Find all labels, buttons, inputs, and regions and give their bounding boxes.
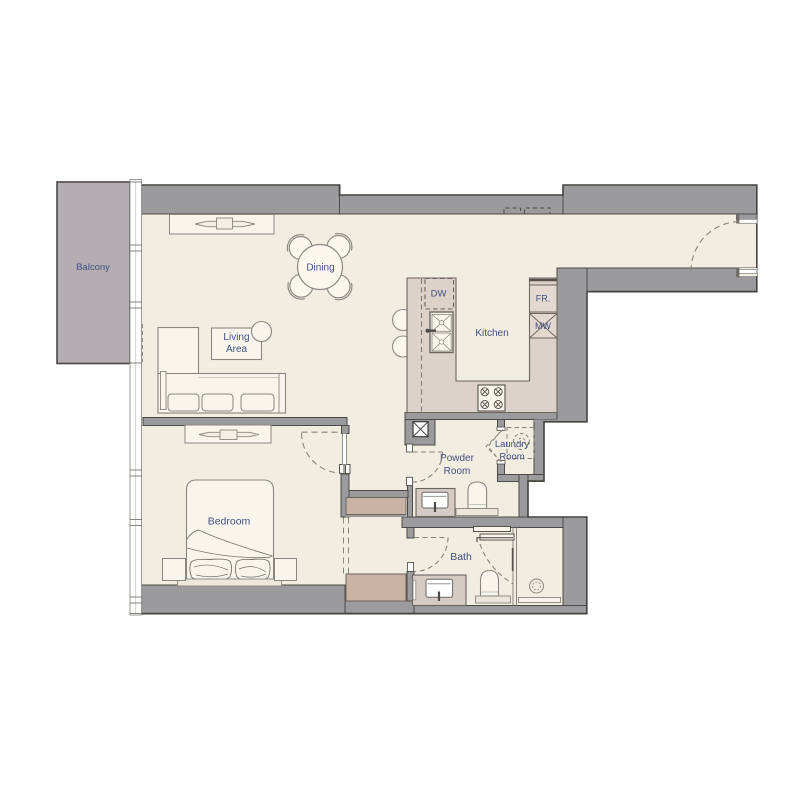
svg-text:Laundry: Laundry xyxy=(495,439,530,450)
svg-text:MW: MW xyxy=(535,321,551,331)
svg-text:Room: Room xyxy=(499,452,524,463)
svg-text:FR.: FR. xyxy=(536,294,551,304)
svg-text:Kitchen: Kitchen xyxy=(475,328,508,339)
svg-text:Dining: Dining xyxy=(306,263,334,274)
svg-text:Area: Area xyxy=(226,344,248,355)
svg-text:Living: Living xyxy=(223,332,249,343)
svg-text:Bedroom: Bedroom xyxy=(208,516,251,528)
svg-text:Powder: Powder xyxy=(440,453,475,464)
svg-text:Room: Room xyxy=(444,466,471,477)
svg-text:Bath: Bath xyxy=(450,551,472,563)
svg-text:Balcony: Balcony xyxy=(76,262,110,273)
svg-text:DW: DW xyxy=(431,289,447,300)
